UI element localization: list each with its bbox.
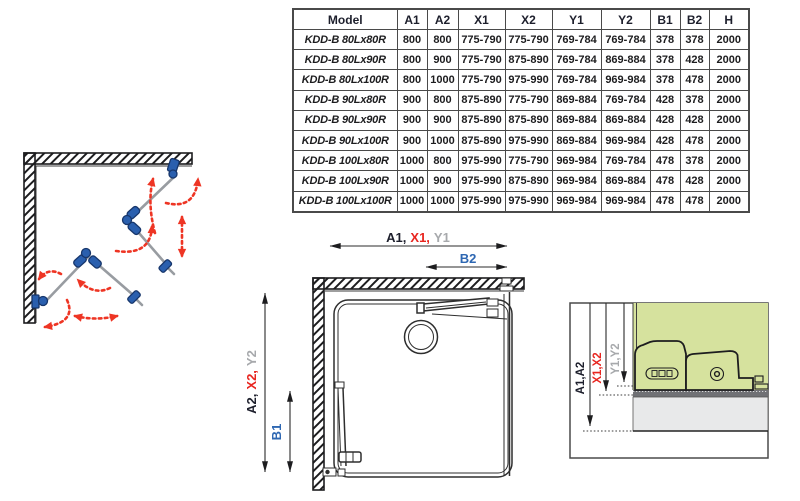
dimension-b2: B2 [426,251,507,267]
dimension-b1: B1 [269,391,290,472]
table-cell: 428 [680,171,709,191]
table-cell: 969-984 [601,130,650,150]
table-cell: 428 [680,50,709,70]
table-cell: 1000 [397,151,427,171]
table-cell: 769-784 [552,70,601,90]
table-cell: 900 [427,50,458,70]
model-cell: KDD-B 90Lx90R [293,110,397,130]
model-cell: KDD-B 90Lx80R [293,90,397,110]
table-cell: 2000 [709,30,749,50]
spec-table-header-row: ModelA1A2X1X2Y1Y2B1B2H [293,9,749,30]
table-cell: 478 [650,151,680,171]
table-cell: 378 [680,30,709,50]
table-cell: 775-790 [505,151,552,171]
table-cell: 800 [427,30,458,50]
table-cell: 478 [680,191,709,212]
table-cell: 900 [427,171,458,191]
table-cell: 1000 [397,191,427,212]
swing-direction-arrows [39,179,198,327]
dimension-height: A2,X2,Y2 [244,293,265,472]
table-cell: 869-884 [552,110,601,130]
table-row: KDD-B 90Lx80R900800875-890775-790869-884… [293,90,749,110]
table-cell: 900 [397,130,427,150]
table-cell: 2000 [709,151,749,171]
detail-y-label: Y1,Y2 [610,343,622,374]
table-cell: 1000 [427,191,458,212]
table-cell: 2000 [709,110,749,130]
shower-enclosure-spec-sheet: ModelA1A2X1X2Y1Y2B1B2H KDD-B 80Lx80R8008… [0,0,800,501]
model-cell: KDD-B 100Lx100R [293,191,397,212]
model-cell: KDD-B 80Lx100R [293,70,397,90]
detail-a-label: A1,A2 [575,362,587,395]
table-cell: 2000 [709,70,749,90]
table-cell: 969-984 [552,151,601,171]
table-cell: 875-890 [505,110,552,130]
column-header: A2 [427,9,458,30]
height-dimension-label: A2,X2,Y2 [244,350,259,414]
model-cell: KDD-B 90Lx100R [293,130,397,150]
table-cell: 800 [427,90,458,110]
table-cell: 2000 [709,171,749,191]
table-cell: 769-784 [601,90,650,110]
table-cell: 800 [427,151,458,171]
table-cell: 428 [680,110,709,130]
table-cell: 775-790 [505,30,552,50]
column-header: A1 [397,9,427,30]
table-cell: 378 [680,90,709,110]
table-cell: 428 [650,90,680,110]
table-row: KDD-B 80Lx80R800800775-790775-790769-784… [293,30,749,50]
column-header: Y2 [601,9,650,30]
dimension-width: A1,X1,Y1 [330,230,507,246]
table-cell: 428 [650,130,680,150]
table-cell: 769-784 [601,30,650,50]
table-cell: 2000 [709,50,749,70]
table-cell: 975-990 [458,171,505,191]
table-row: KDD-B 80Lx90R800900775-790875-890769-784… [293,50,749,70]
table-cell: 875-890 [458,130,505,150]
door-swing-diagram [15,140,225,350]
table-cell: 478 [650,171,680,191]
wall-profile-detail: A1,A2 X1,X2 Y1,Y2 [565,298,780,466]
table-cell: 869-884 [552,130,601,150]
plan-view-diagram: A1,X1,Y1 B2 A2,X2,Y2 B1 [240,230,532,501]
b2-dimension-label: B2 [460,251,477,266]
column-header: B2 [680,9,709,30]
table-cell: 975-990 [458,191,505,212]
spec-table-body: KDD-B 80Lx80R800800775-790775-790769-784… [293,30,749,212]
b1-dimension-label: B1 [269,424,284,441]
table-cell: 378 [680,151,709,171]
table-cell: 875-890 [505,171,552,191]
column-header: B1 [650,9,680,30]
table-cell: 775-790 [458,70,505,90]
column-header: X2 [505,9,552,30]
table-row: KDD-B 80Lx100R8001000775-790975-990769-7… [293,70,749,90]
table-cell: 969-984 [601,70,650,90]
table-cell: 969-984 [552,171,601,191]
table-row: KDD-B 100Lx90R1000900975-990875-890969-9… [293,171,749,191]
shower-tray [334,300,512,477]
table-cell: 2000 [709,130,749,150]
model-cell: KDD-B 100Lx90R [293,171,397,191]
table-cell: 775-790 [458,30,505,50]
table-cell: 769-784 [601,151,650,171]
table-cell: 378 [650,30,680,50]
spec-table: ModelA1A2X1X2Y1Y2B1B2H KDD-B 80Lx80R8008… [292,8,750,213]
table-row: KDD-B 100Lx80R1000800975-990775-790969-9… [293,151,749,171]
table-cell: 478 [680,130,709,150]
table-cell: 969-984 [601,191,650,212]
width-dimension-label: A1,X1,Y1 [386,230,450,245]
table-cell: 775-790 [458,50,505,70]
table-cell: 975-990 [505,70,552,90]
table-cell: 800 [397,30,427,50]
table-cell: 378 [650,70,680,90]
table-cell: 2000 [709,191,749,212]
table-cell: 869-884 [601,110,650,130]
table-cell: 1000 [427,70,458,90]
table-cell: 769-784 [552,50,601,70]
table-cell: 969-984 [552,191,601,212]
detail-x-label: X1,X2 [592,352,604,383]
model-cell: KDD-B 100Lx80R [293,151,397,171]
column-header: Y1 [552,9,601,30]
table-cell: 769-784 [552,30,601,50]
table-cell: 975-990 [505,191,552,212]
table-cell: 869-884 [601,171,650,191]
table-cell: 1000 [397,171,427,191]
table-cell: 869-884 [601,50,650,70]
table-cell: 775-790 [505,90,552,110]
table-cell: 478 [680,70,709,90]
table-cell: 378 [650,50,680,70]
model-cell: KDD-B 80Lx90R [293,50,397,70]
left-folding-door [32,249,142,309]
table-row: KDD-B 90Lx90R900900875-890875-890869-884… [293,110,749,130]
table-cell: 875-890 [505,50,552,70]
column-header: Model [293,9,397,30]
table-row: KDD-B 100Lx100R10001000975-990975-990969… [293,191,749,212]
table-cell: 975-990 [505,130,552,150]
table-cell: 900 [427,110,458,130]
table-cell: 800 [397,50,427,70]
table-cell: 875-890 [458,90,505,110]
table-cell: 869-884 [552,90,601,110]
column-header: H [709,9,749,30]
table-cell: 2000 [709,90,749,110]
table-cell: 975-990 [458,151,505,171]
table-cell: 800 [397,70,427,90]
model-cell: KDD-B 80Lx80R [293,30,397,50]
table-cell: 875-890 [458,110,505,130]
table-row: KDD-B 90Lx100R9001000875-890975-990869-8… [293,130,749,150]
table-cell: 428 [650,110,680,130]
table-cell: 900 [397,90,427,110]
tray-edge [633,397,768,431]
column-header: X1 [458,9,505,30]
table-cell: 1000 [427,130,458,150]
table-cell: 900 [397,110,427,130]
table-cell: 478 [650,191,680,212]
